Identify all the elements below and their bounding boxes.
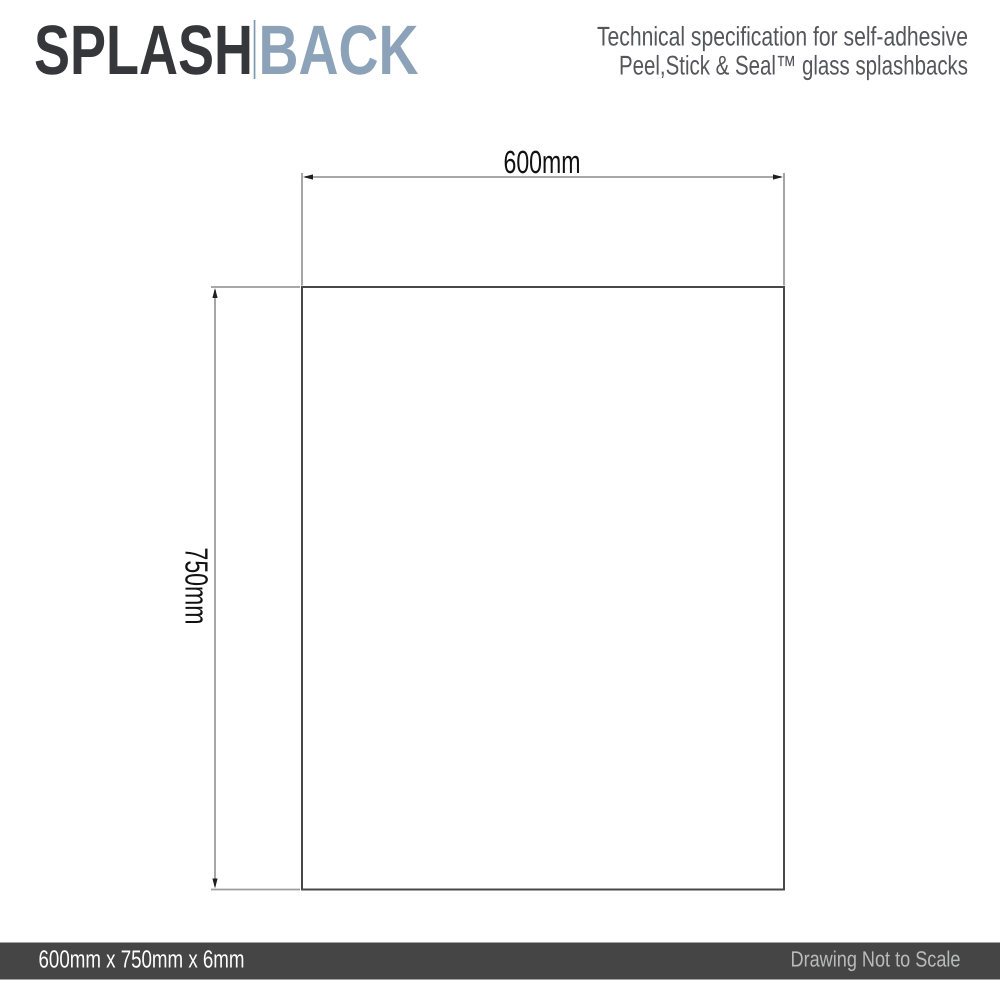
svg-text:Drawing Not to Scale: Drawing Not to Scale: [791, 947, 961, 972]
svg-text:BACK: BACK: [259, 11, 419, 89]
svg-text:Peel,Stick & Seal™ glass splas: Peel,Stick & Seal™ glass splashbacks: [619, 51, 968, 81]
svg-text:Technical specification for se: Technical specification for self-adhesiv…: [597, 21, 968, 51]
svg-text:750mm: 750mm: [179, 548, 215, 625]
svg-text:SPLASH: SPLASH: [34, 11, 253, 89]
svg-text:600mm: 600mm: [504, 144, 581, 180]
svg-text:600mm x 750mm x 6mm: 600mm x 750mm x 6mm: [39, 946, 245, 973]
